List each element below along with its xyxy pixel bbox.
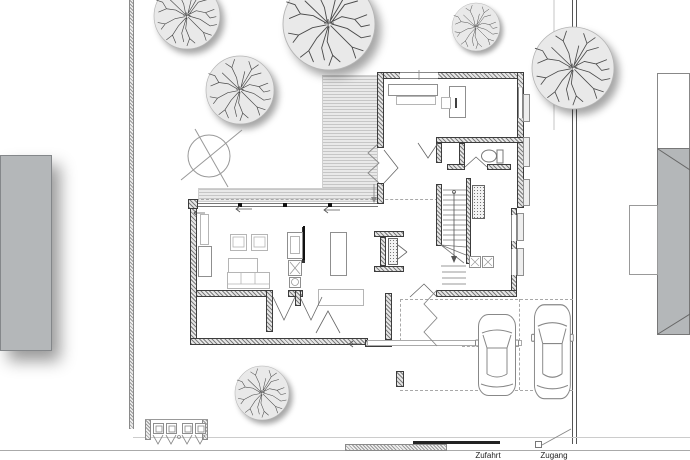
bin-inner-squares (153, 426, 205, 444)
tree-5 (532, 27, 614, 109)
neighbor-roof-ridge-lines (658, 149, 690, 334)
tree-3 (206, 56, 274, 124)
gate-swing (542, 429, 571, 445)
car-2 (532, 305, 574, 399)
facade-sliding-markers (194, 203, 362, 347)
site-plan: Zufahrt Zugang (0, 0, 690, 460)
fireplace-opening (398, 245, 407, 259)
toilet (482, 150, 504, 163)
door-swings (273, 143, 487, 333)
entry-court-zigzag (424, 290, 437, 346)
tree-4 (452, 3, 500, 51)
pantry-x-marks (471, 258, 492, 266)
tree-1 (154, 0, 220, 49)
staircase (441, 190, 466, 284)
north-arrow (181, 129, 242, 187)
car-1 (476, 315, 519, 396)
tree-2 (283, 0, 375, 70)
plan-symbol-layer (0, 0, 690, 460)
kitchen-sink-detail (290, 262, 300, 286)
tree-6 (235, 366, 289, 420)
sofa-seat-lines (228, 237, 269, 284)
entrance-ramp-marker (368, 143, 379, 203)
